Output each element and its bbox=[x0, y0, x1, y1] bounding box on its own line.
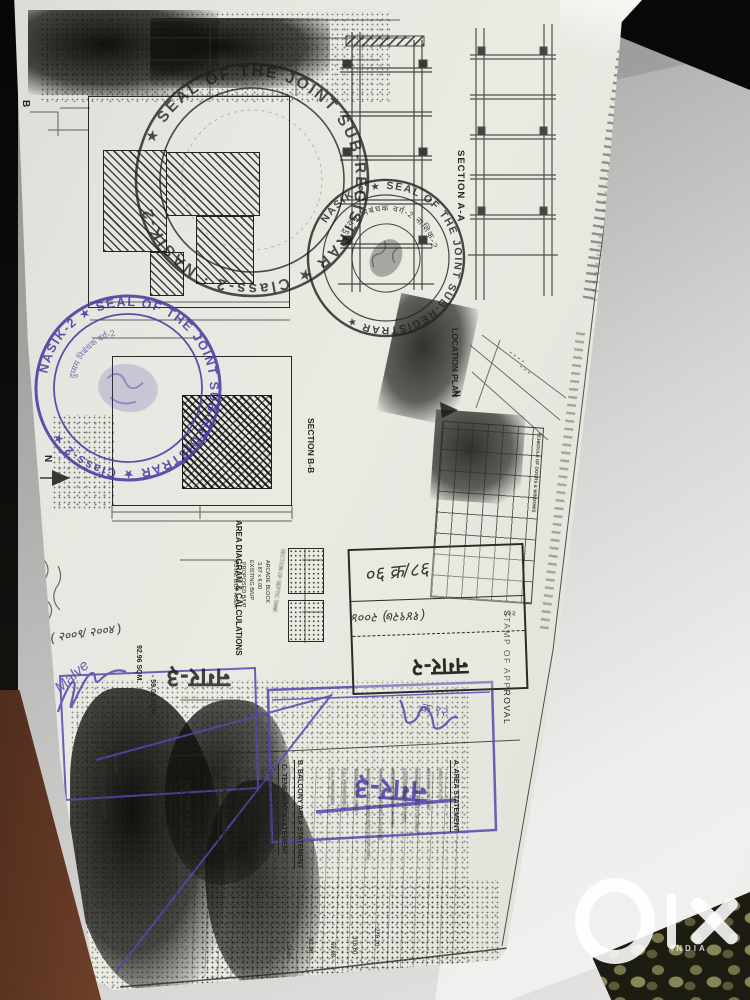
certificate-body-line: FOUND AS MENTIONED ON PLAN AND AS PER DO… bbox=[162, 784, 167, 969]
area-statement-item: AREA OF PLOT bbox=[438, 768, 443, 938]
seal-ring-text: ★ SEAL OF THE JOINT SUB-REGISTRAR ★ Clas… bbox=[102, 30, 402, 330]
tenement-statement-heading: C. TENEMENT STATEMENT bbox=[280, 764, 287, 964]
tenement-statement-item: d) TENEMENTS PERMISSIBLE bbox=[244, 770, 249, 930]
architect-block-line: ARCHITECTS & ENGINEERS bbox=[100, 752, 106, 922]
tenement-statement-item: a) NET AREA OF PLOT NO. 7 ABOVE bbox=[268, 770, 273, 930]
area-statement-heading: A. AREA STATEMENT bbox=[452, 760, 459, 960]
section-bb-drawing bbox=[468, 24, 558, 300]
area-calc-row: ARCADE BLOCK bbox=[264, 560, 270, 710]
olx-logo-o bbox=[575, 878, 655, 964]
certificate-body-line: WAS MEASURED ON SITE AND THE AREA OF THE… bbox=[168, 784, 173, 969]
tenement-statement-item: b) LESS DEDUCTION FOR NON RESID. USE bbox=[260, 770, 265, 930]
location-plan-label: LOCATION PLAN bbox=[450, 328, 460, 433]
area-calc-row: 3.87 x 6.00 bbox=[256, 562, 262, 712]
seal-joint-sub-registrar-large: ★ SEAL OF THE JOINT SUB-REGISTRAR ★ Clas… bbox=[102, 30, 402, 330]
stamp-box-line2-suffix: २२२ bbox=[503, 608, 516, 619]
area-calc-value: 92.96 SQM. bbox=[135, 645, 142, 735]
olx-country-label: INDIA bbox=[671, 944, 708, 953]
location-plan-sketch bbox=[470, 335, 566, 440]
section-aa-label: SECTION A-A bbox=[455, 150, 466, 250]
certificate-body-line: SIGNATURE OF OWNER / ARCHITECT bbox=[156, 784, 161, 969]
statement-ruled-lines bbox=[191, 763, 460, 984]
area-statement-item: BALCONY AREA TAKEN INTO FLOOR AREA bbox=[366, 768, 371, 938]
area-statement-item: F.S.I. PERMISSIBLE bbox=[342, 768, 347, 938]
tenement-statement-item: e) TENEMENTS PROPOSED bbox=[236, 770, 241, 930]
area-statement-item: F.S.I. PROPOSED bbox=[330, 768, 335, 938]
parking-statement-item: PARKING REQUIRED BY RULE bbox=[210, 772, 215, 922]
area-statement-item: PROPOSED BUILT UP AREA bbox=[390, 768, 395, 938]
area-calc-row: EXISTING B/UP bbox=[248, 560, 254, 710]
svg-text:★ SEAL OF THE JOINT SUB-REGIST: ★ SEAL OF THE JOINT SUB-REGISTRAR ★ Clas… bbox=[102, 30, 402, 330]
area-statement-item: EXISTING BUILT UP AREA bbox=[402, 768, 407, 938]
area-statement-item: NET AREA OF PLOT bbox=[426, 768, 431, 938]
area-statement-item: TOTAL FLOOR AREA bbox=[354, 768, 359, 938]
architect-block-line: NASHIK bbox=[112, 756, 118, 876]
north-label: N bbox=[42, 455, 53, 462]
certificate-body-line: THIS IS TO CERTIFY THAT THE PLOT UNDER R… bbox=[174, 784, 179, 969]
parking-statement-item: PARKING PROVIDED bbox=[202, 772, 207, 922]
section-marker-a: A bbox=[212, 20, 222, 27]
section-marker-b: B bbox=[20, 100, 31, 107]
stamp-box-line2: (१४९२७) २००४ bbox=[352, 607, 436, 628]
area-statement-item: TOTAL BUILT UP AREA [14+15+16] bbox=[378, 768, 383, 938]
area-statement-item: PERMISSIBLE BUILT UP AREA bbox=[414, 768, 419, 938]
tenement-statement-item: c) AREA OF TENEMENTS (a-b) bbox=[252, 770, 257, 930]
olx-watermark: INDIA bbox=[575, 878, 735, 978]
nagar-2-stamp-box: ०६ क्र/८६ (१४९२७) २००४ २२२ नगर-२ bbox=[348, 543, 529, 695]
balcony-statement-heading: B. BALCONY AREA STATEMENT bbox=[296, 760, 303, 970]
certificate-heading: CERTIFICATE OF AREA bbox=[183, 780, 190, 970]
north-label: N bbox=[452, 390, 462, 397]
nagar-3-black-stamp: नगर-३ bbox=[148, 652, 248, 698]
nagar-2-label: नगर-२ bbox=[353, 631, 527, 693]
olx-logo-x bbox=[688, 893, 735, 949]
photo-of-building-plan: SECTION OF SEPTIC TANK SCHEDULE OF DOORS… bbox=[0, 0, 750, 1000]
olx-logo-bar bbox=[667, 893, 676, 949]
section-bb-label: SECTION B-B bbox=[306, 418, 316, 508]
parking-statement-heading: D. PARKING STATEMENT bbox=[220, 766, 227, 956]
